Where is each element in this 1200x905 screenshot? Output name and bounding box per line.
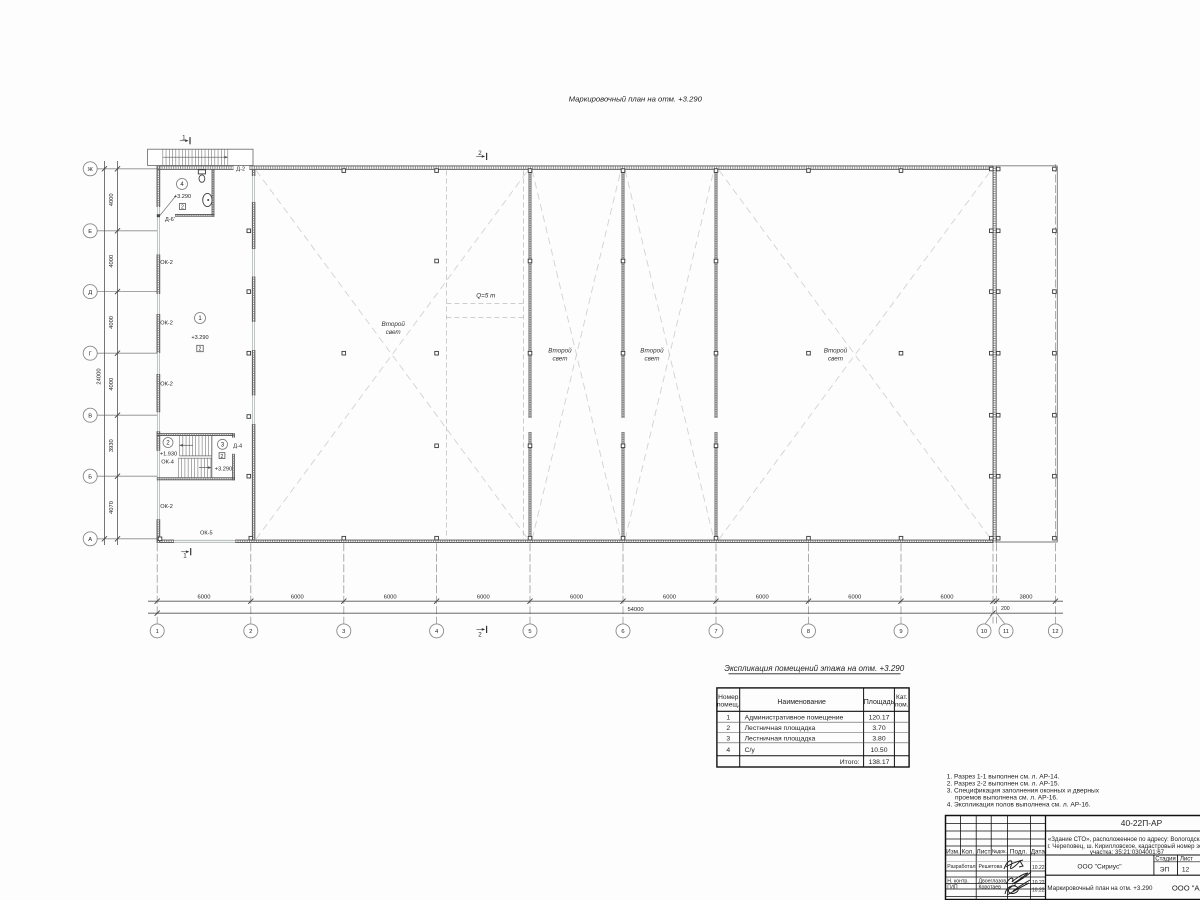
svg-text:10.22: 10.22 [1032,880,1045,886]
svg-text:10.22: 10.22 [1032,888,1045,894]
svg-text:200: 200 [1001,606,1010,612]
svg-text:10.50: 10.50 [870,747,887,754]
svg-text:12: 12 [1052,629,1058,635]
svg-text:12: 12 [1182,866,1190,873]
svg-text:1. Разрез 1-1 выполнен см. л.: 1. Разрез 1-1 выполнен см. л. АР-14. [947,773,1060,780]
svg-text:+3.290: +3.290 [191,335,208,341]
svg-text:Стадия: Стадия [1155,857,1175,863]
svg-text:Ж: Ж [88,167,94,173]
svg-text:Лестничная площадка: Лестничная площадка [745,725,816,732]
svg-text:Д-2: Д-2 [236,167,245,173]
svg-text:2: 2 [181,205,184,211]
svg-text:Е: Е [88,229,92,235]
svg-text:+3.290: +3.290 [174,194,191,200]
svg-text:Лист: Лист [1180,857,1193,863]
svg-text:6000: 6000 [477,595,490,601]
svg-text:6000: 6000 [198,595,211,601]
svg-text:свет: свет [645,355,660,362]
svg-text:3: 3 [342,629,345,635]
svg-text:Итого:: Итого: [840,759,860,766]
svg-text:6000: 6000 [291,595,304,601]
svg-text:ООО "Сириус": ООО "Сириус" [1077,863,1122,870]
svg-text:9: 9 [899,629,902,635]
svg-text:1: 1 [726,715,730,722]
svg-text:Д: Д [88,290,92,296]
svg-text:Площадь: Площадь [864,699,895,706]
svg-text:ОК-4: ОК-4 [161,459,174,465]
svg-text:свет: свет [386,329,401,336]
svg-text:свет: свет [828,355,843,362]
svg-text:ОК-2: ОК-2 [160,320,173,326]
svg-text:Решетова: Решетова [979,864,1003,870]
svg-text:6000: 6000 [663,595,676,601]
svg-text:24000: 24000 [97,368,103,384]
svg-text:Изм.: Изм. [946,848,960,855]
svg-text:4000: 4000 [109,316,115,329]
svg-text:6000: 6000 [384,595,397,601]
svg-text:Кол.: Кол. [961,848,974,855]
svg-text:4000: 4000 [109,378,115,391]
svg-text:проемов выполнена см. л. АР-16: проемов выполнена см. л. АР-16. [955,794,1058,801]
svg-text:4: 4 [726,747,730,754]
svg-text:Лист: Лист [977,848,991,855]
svg-text:Кат.: Кат. [896,694,908,701]
svg-text:6000: 6000 [570,595,583,601]
svg-text:4000: 4000 [109,255,115,268]
svg-text:4000: 4000 [109,193,115,206]
svg-text:8: 8 [807,629,810,635]
svg-text:Второй: Второй [824,346,848,354]
svg-text:Административное помещение: Административное помещение [745,715,844,722]
svg-text:Маркировочный план на отм. +3.: Маркировочный план на отм. +3.290 [569,95,703,104]
svg-text:помещ.: помещ. [717,702,740,709]
svg-text:2: 2 [478,631,482,638]
svg-text:6000: 6000 [941,595,954,601]
svg-text:Наименование: Наименование [777,699,826,706]
svg-text:5: 5 [528,629,531,635]
svg-text:+1.930: +1.930 [160,451,177,457]
svg-text:1: 1 [183,552,187,559]
svg-text:54000: 54000 [627,607,643,613]
svg-text:1: 1 [156,629,159,635]
svg-text:ОК-2: ОК-2 [160,504,173,510]
svg-text:11: 11 [1003,629,1009,635]
svg-text:№док.: №док. [992,849,1007,855]
svg-text:7: 7 [714,629,717,635]
svg-text:6000: 6000 [848,595,861,601]
svg-text:ОК-2: ОК-2 [160,260,173,266]
svg-text:10: 10 [981,629,987,635]
svg-text:3800: 3800 [1020,595,1033,601]
svg-text:ОК-2: ОК-2 [160,381,173,387]
svg-text:Б: Б [88,474,92,480]
svg-text:ООО "Ал: ООО "Ал [1172,884,1200,893]
svg-text:2: 2 [726,725,730,732]
svg-text:ЭП: ЭП [1160,866,1170,873]
svg-text:С/у: С/у [745,747,756,754]
svg-text:Разработал: Разработал [947,864,975,870]
svg-text:Q=5 т: Q=5 т [476,293,495,300]
svg-text:3930: 3930 [109,439,115,452]
svg-text:Второй: Второй [382,320,406,328]
svg-text:Экспликация помещений этажа на: Экспликация помещений этажа на отм. +3.2… [724,664,904,673]
svg-text:6: 6 [621,629,624,635]
svg-text:Д-6': Д-6' [165,217,175,223]
svg-text:120.17: 120.17 [869,715,890,722]
svg-text:А: А [88,537,92,543]
svg-text:свет: свет [553,355,568,362]
svg-text:Коротаев: Коротаев [979,884,1002,890]
svg-text:2. Разрез 2-2 выполнен см. л.: 2. Разрез 2-2 выполнен см. л. АР-15. [947,780,1060,787]
svg-text:2: 2 [249,629,252,635]
svg-text:Лестничная площадка: Лестничная площадка [745,735,816,742]
svg-text:ГИП: ГИП [947,884,958,890]
svg-text:Маркировочный план на отм. +3.: Маркировочный план на отм. +3.290 [1047,885,1153,892]
svg-text:ОК-5: ОК-5 [200,530,213,536]
svg-text:4070: 4070 [109,501,115,514]
svg-text:6000: 6000 [756,595,769,601]
svg-text:3.70: 3.70 [872,725,885,732]
svg-text:10.22: 10.22 [1032,865,1045,871]
svg-text:Второй: Второй [548,346,572,354]
svg-text:2: 2 [199,347,202,353]
svg-text:Подл.: Подл. [1010,848,1027,855]
svg-text:Дата: Дата [1031,848,1046,855]
svg-text:пом.: пом. [895,702,909,709]
svg-text:3.80: 3.80 [872,735,885,742]
svg-text:3. Спецификация заполнения око: 3. Спецификация заполнения оконных и две… [947,787,1100,794]
svg-text:138.17: 138.17 [869,759,890,766]
svg-text:40-22П-АР: 40-22П-АР [1121,818,1163,828]
svg-text:В: В [88,413,92,419]
svg-text:2: 2 [221,454,224,460]
svg-text:Номер: Номер [718,694,739,701]
svg-text:4. Экспликация полов выполнена: 4. Экспликация полов выполнена см. л. АР… [947,801,1091,808]
svg-text:Второй: Второй [640,346,664,354]
svg-text:участка: 35:21:0304001:67: участка: 35:21:0304001:67 [1090,849,1165,856]
svg-text:Д-4: Д-4 [233,444,242,450]
svg-text:3: 3 [726,735,730,742]
svg-text:+3.290: +3.290 [215,466,232,472]
